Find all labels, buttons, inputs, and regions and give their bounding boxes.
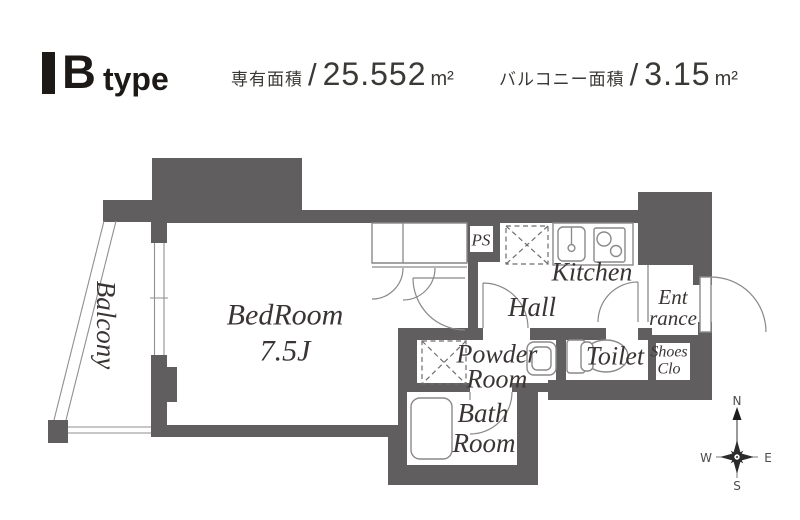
- kitchen-label: Kitchen: [551, 258, 633, 287]
- shoes-closet-label: Shoes: [650, 344, 687, 361]
- walls: [48, 158, 712, 485]
- entrance-door: [700, 277, 766, 332]
- toilet-door: [598, 282, 638, 322]
- compass-e: E: [764, 451, 772, 465]
- refrigerator-space: [506, 226, 548, 264]
- bath-room-label: Bath: [458, 398, 509, 428]
- bedroom-label: BedRoom: [227, 299, 344, 332]
- closet: [372, 223, 467, 300]
- compass-w: W: [700, 451, 712, 465]
- hall-label: Hall: [507, 292, 556, 322]
- compass-rose: N S W E: [700, 394, 772, 493]
- bath-room-label2: Room: [452, 428, 516, 458]
- shoes-closet-label2: Clo: [657, 361, 680, 378]
- balcony-label: Balcony: [91, 281, 121, 369]
- bathtub-icon: [411, 398, 452, 459]
- sink-icon: [558, 227, 585, 261]
- bedroom-door: [413, 278, 465, 330]
- bedroom-size-label: 7.5J: [260, 335, 313, 368]
- powder-room-label2: Room: [466, 365, 528, 394]
- compass-s: S: [733, 479, 741, 493]
- toilet-label: Toilet: [586, 342, 645, 371]
- entrance-label2: rance: [649, 306, 697, 330]
- floorplan-page: B type 専有面積 / 25.552 m² バルコニー面積 / 3.15 m…: [0, 0, 800, 520]
- pipe-space-label: PS: [471, 231, 491, 250]
- floorplan-drawing: Balcony BedRoom 7.5J Kitchen Hall Powder…: [0, 0, 800, 520]
- compass-n: N: [733, 394, 742, 408]
- window: [150, 243, 168, 355]
- north-arrow-icon: [733, 407, 742, 420]
